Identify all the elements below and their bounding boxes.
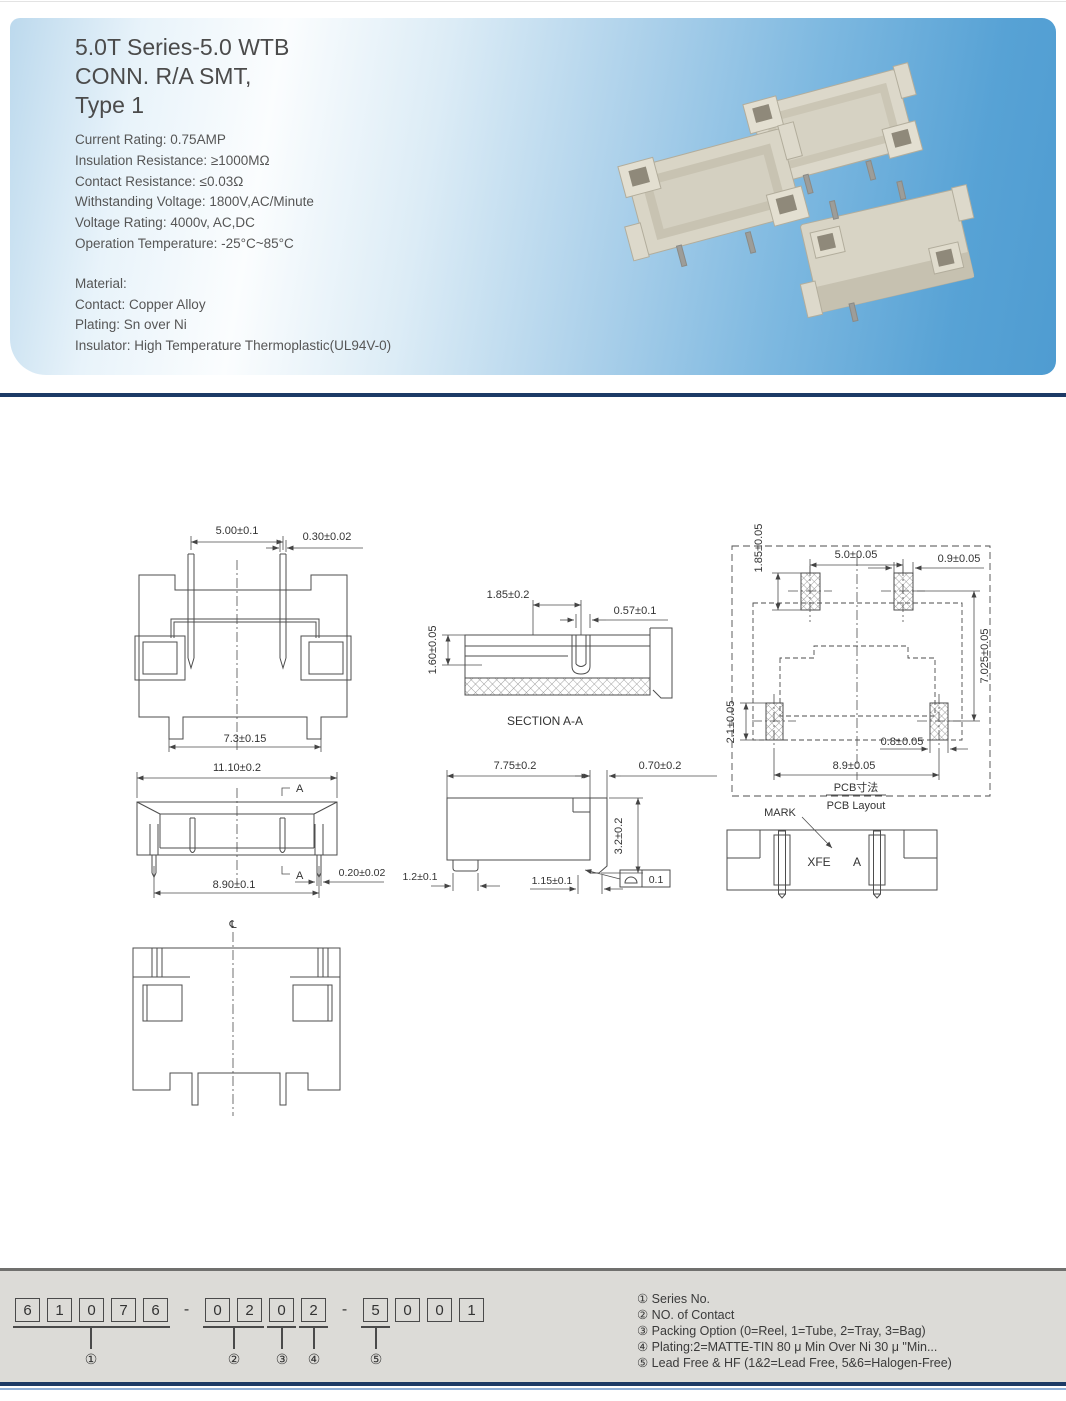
dim-label: 8.90±0.1 [213, 879, 256, 891]
drawing-side-view: 7.75±0.2 0.70±0.2 3.2±0.2 1.2±0.1 1.15±0… [395, 758, 725, 918]
drawing-section-aa: 1.60±0.05 1.85±0.2 0.57±0.1 SECTION A-A [420, 578, 680, 733]
legend-item: ② NO. of Contact [637, 1307, 734, 1322]
dim-label: 0.57±0.1 [614, 605, 657, 617]
part-number-dash: - [170, 1298, 203, 1322]
drawing-pcb-layout: 1.85±0.05 5.0±0.05 0.9±0.05 7.025±0.05 2… [722, 518, 1017, 818]
part-digit-box: 0 [79, 1298, 104, 1322]
part-digit-box: 2 [237, 1298, 262, 1322]
spec-line: Contact Resistance: ≤0.03Ω [75, 172, 314, 193]
marking-text: XFE [807, 855, 830, 869]
spec-line: Voltage Rating: 4000v, AC,DC [75, 213, 314, 234]
part-digit-box: 0 [395, 1298, 420, 1322]
section-marker: A [296, 783, 304, 795]
part-digit-box: 2 [301, 1298, 326, 1322]
material-line: Insulator: High Temperature Thermoplasti… [75, 336, 391, 357]
group-stem [233, 1328, 235, 1349]
dim-label: 7.75±0.2 [494, 760, 537, 772]
scan-artifact-line [0, 1, 1066, 2]
group-stem [281, 1328, 283, 1349]
drawing-bottom-view: ℄ [122, 916, 357, 1121]
page-title: 5.0T Series-5.0 WTB CONN. R/A SMT, Type … [75, 33, 289, 120]
part-digit-box: 1 [47, 1298, 72, 1322]
section-divider [0, 393, 1066, 397]
title-line: CONN. R/A SMT, [75, 62, 289, 91]
drawing-front-view: 5.00±0.1 0.30±0.02 7.3±0.15 [125, 518, 365, 758]
mark-label: MARK [764, 807, 796, 819]
dim-label: 1.85±0.2 [487, 589, 530, 601]
legend-item: ① Series No. [637, 1291, 710, 1306]
drawing-label-cn: PCB寸法 [834, 780, 879, 794]
part-digit-box: 1 [459, 1298, 484, 1322]
part-digit-box: 0 [205, 1298, 230, 1322]
legend-item: ⑤ Lead Free & HF (1&2=Lead Free, 5&6=Hal… [637, 1355, 952, 1370]
material-line: Plating: Sn over Ni [75, 315, 391, 336]
group-number: ① [80, 1351, 102, 1368]
part-digit-box: 7 [111, 1298, 136, 1322]
group-underline [13, 1326, 170, 1328]
group-number: ② [223, 1351, 245, 1368]
dim-label: 1.15±0.1 [532, 875, 573, 887]
drawing-label: SECTION A-A [507, 714, 583, 728]
material-line: Contact: Copper Alloy [75, 295, 391, 316]
flatness-value: 0.1 [649, 874, 664, 886]
group-number: ③ [271, 1351, 293, 1368]
legend-item: ④ Plating:2=MATTE-TIN 80 μ Min Over Ni 3… [637, 1339, 937, 1354]
drawing-mark-view: MARK XFE A [722, 802, 982, 907]
spec-line: Insulation Resistance: ≥1000MΩ [75, 151, 314, 172]
dim-label: 1.85±0.05 [753, 524, 765, 573]
title-line: 5.0T Series-5.0 WTB [75, 33, 289, 62]
part-digit-box: 0 [269, 1298, 294, 1322]
connector-render-right [783, 167, 991, 331]
spec-line: Withstanding Voltage: 1800V,AC/Minute [75, 192, 314, 213]
part-digit-box: 0 [427, 1298, 452, 1322]
group-stem [313, 1328, 315, 1349]
section-marker: A [296, 870, 304, 882]
dim-label: 2.1±0.05 [725, 701, 737, 744]
datasheet-page: 5.0T Series-5.0 WTB CONN. R/A SMT, Type … [0, 0, 1066, 1401]
spec-line: Current Rating: 0.75AMP [75, 130, 314, 151]
dim-label: 0.30±0.02 [303, 531, 352, 543]
part-digit-box: 6 [143, 1298, 168, 1322]
connector-render-left [609, 120, 823, 283]
dim-label: 5.0±0.05 [835, 549, 878, 561]
dim-label: 3.2±0.2 [613, 818, 625, 855]
material-list: Material: Contact: Copper Alloy Plating:… [75, 274, 391, 356]
dim-label: 7.3±0.15 [224, 733, 267, 745]
part-number-dash: - [328, 1298, 361, 1322]
spec-list: Current Rating: 0.75AMP Insulation Resis… [75, 130, 314, 255]
spec-line: Operation Temperature: -25°C~85°C [75, 234, 314, 255]
dim-label: 1.60±0.05 [427, 626, 439, 675]
title-line: Type 1 [75, 91, 289, 120]
dim-label: 0.20±0.02 [339, 867, 386, 879]
flatness-symbol [625, 877, 637, 883]
product-photo [555, 30, 1045, 370]
group-stem [375, 1328, 377, 1349]
dim-label: 1.2±0.1 [403, 871, 438, 883]
centerline-symbol: ℄ [228, 919, 236, 931]
group-number: ⑤ [365, 1351, 387, 1368]
header-panel: 5.0T Series-5.0 WTB CONN. R/A SMT, Type … [10, 18, 1056, 375]
dim-label: 8.9±0.05 [833, 760, 876, 772]
drawing-top-view: 11.10±0.2 A A 8.90±0.1 0.20±0.02 [122, 758, 422, 913]
dim-label: 11.10±0.2 [213, 762, 261, 774]
part-digit-box: 5 [363, 1298, 388, 1322]
dim-label: 7.025±0.05 [979, 629, 991, 684]
dim-label: 0.70±0.2 [639, 760, 682, 772]
dim-label: 5.00±0.1 [216, 525, 259, 537]
marking-pos: A [853, 855, 861, 869]
legend-item: ③ Packing Option (0=Reel, 1=Tube, 2=Tray… [637, 1323, 926, 1338]
group-number: ④ [303, 1351, 325, 1368]
group-stem [90, 1328, 92, 1349]
flatness-callout: 0.1 [620, 870, 670, 887]
dim-label: 0.8±0.05 [881, 736, 924, 748]
material-line: Material: [75, 274, 391, 295]
panel-bottom-accent [0, 1388, 1066, 1390]
part-digit-box: 6 [15, 1298, 40, 1322]
dim-label: 0.9±0.05 [938, 553, 981, 565]
